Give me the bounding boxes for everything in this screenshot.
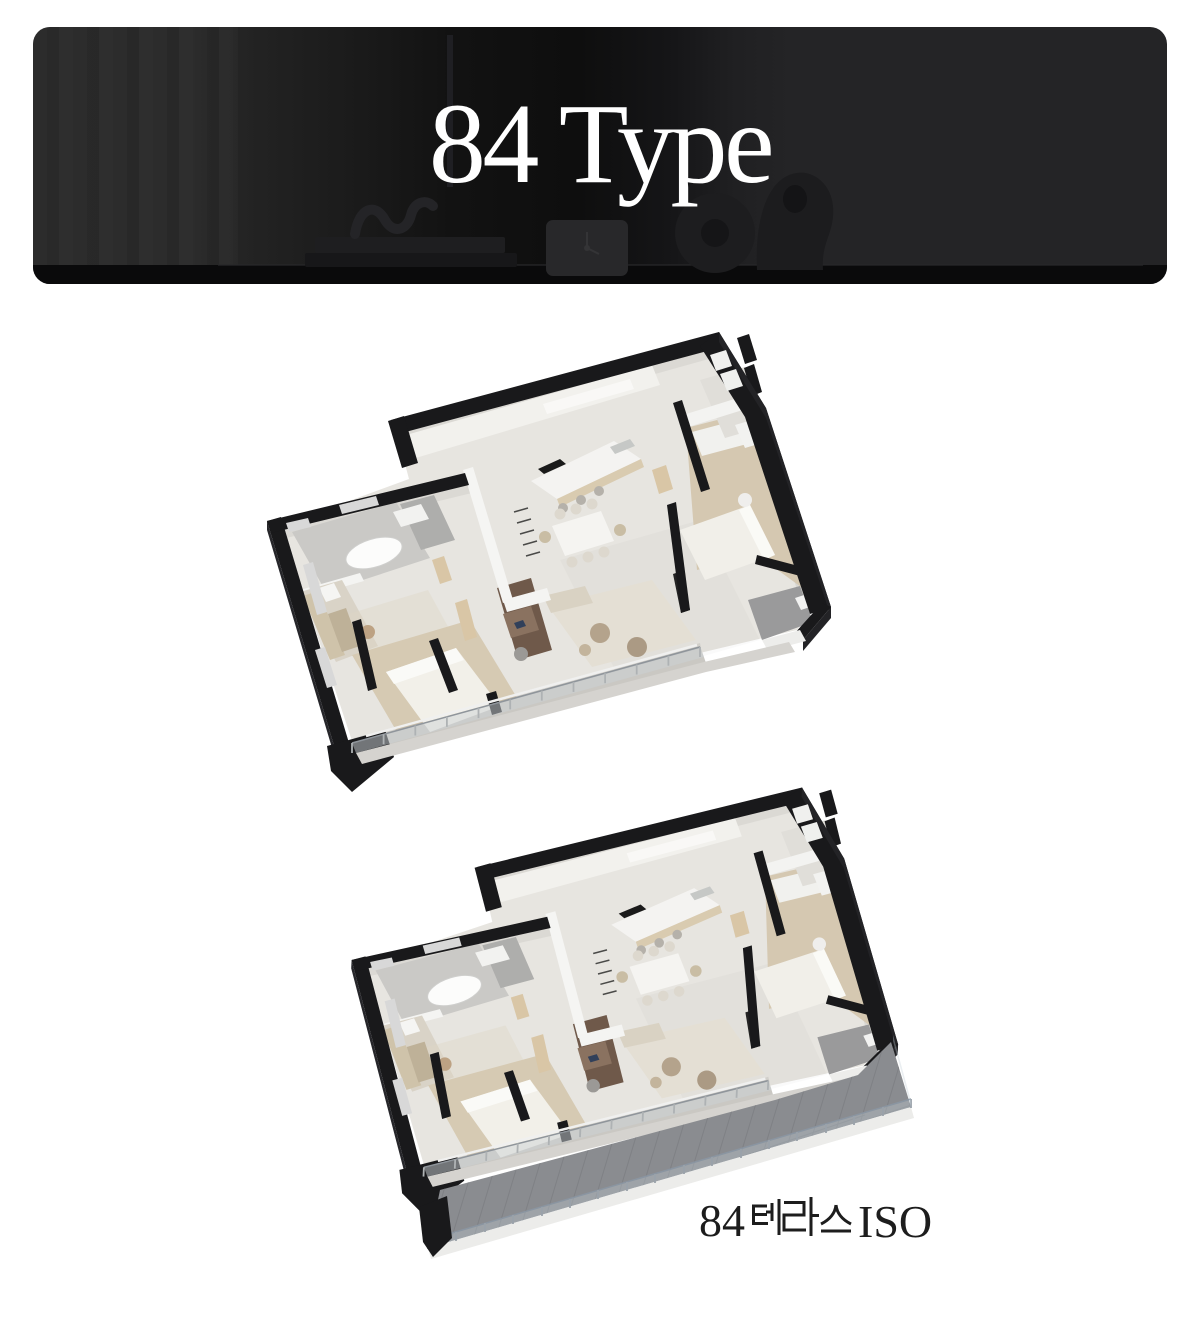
svg-text:ISO: ISO <box>858 1196 932 1247</box>
svg-text:84: 84 <box>699 1195 745 1246</box>
